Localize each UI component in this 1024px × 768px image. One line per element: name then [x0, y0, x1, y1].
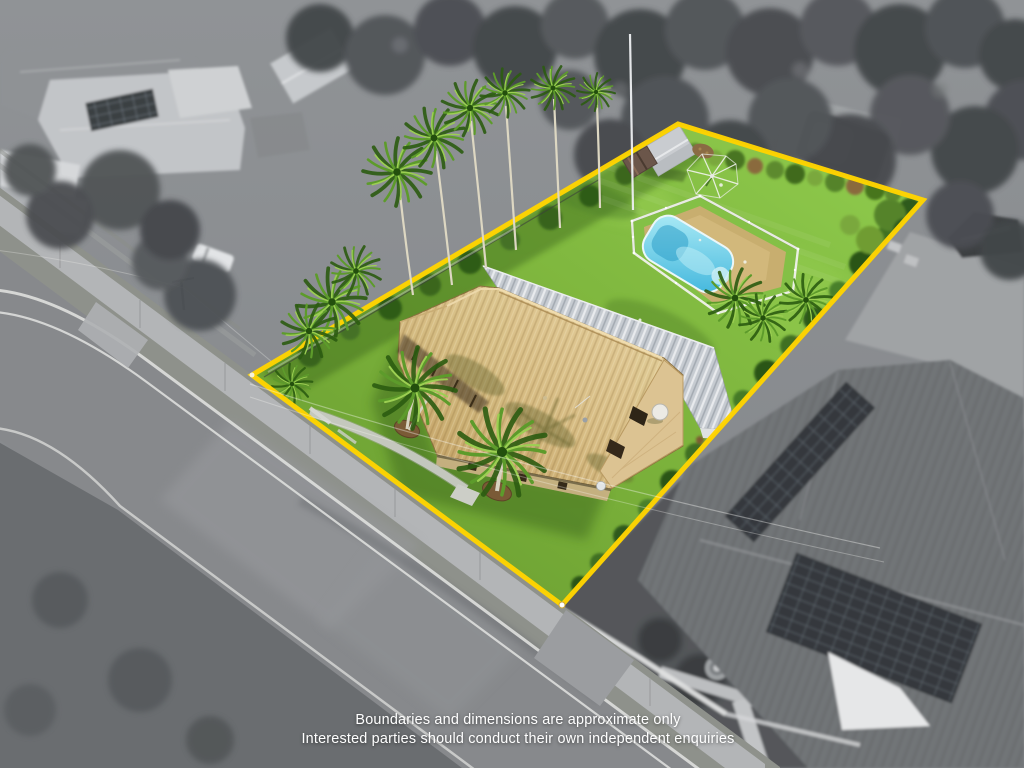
scene-svg — [0, 0, 1024, 768]
disclaimer-line-2: Interested parties should conduct their … — [6, 730, 1024, 749]
water-tank — [652, 404, 668, 420]
survey-peg — [250, 373, 255, 378]
disclaimer-caption: Boundaries and dimensions are approximat… — [6, 711, 1024, 749]
aerial-property-photo: Boundaries and dimensions are approximat… — [0, 0, 1024, 768]
roof-vent — [583, 418, 588, 423]
disclaimer-line-1: Boundaries and dimensions are approximat… — [6, 711, 1024, 730]
survey-peg — [559, 602, 565, 608]
